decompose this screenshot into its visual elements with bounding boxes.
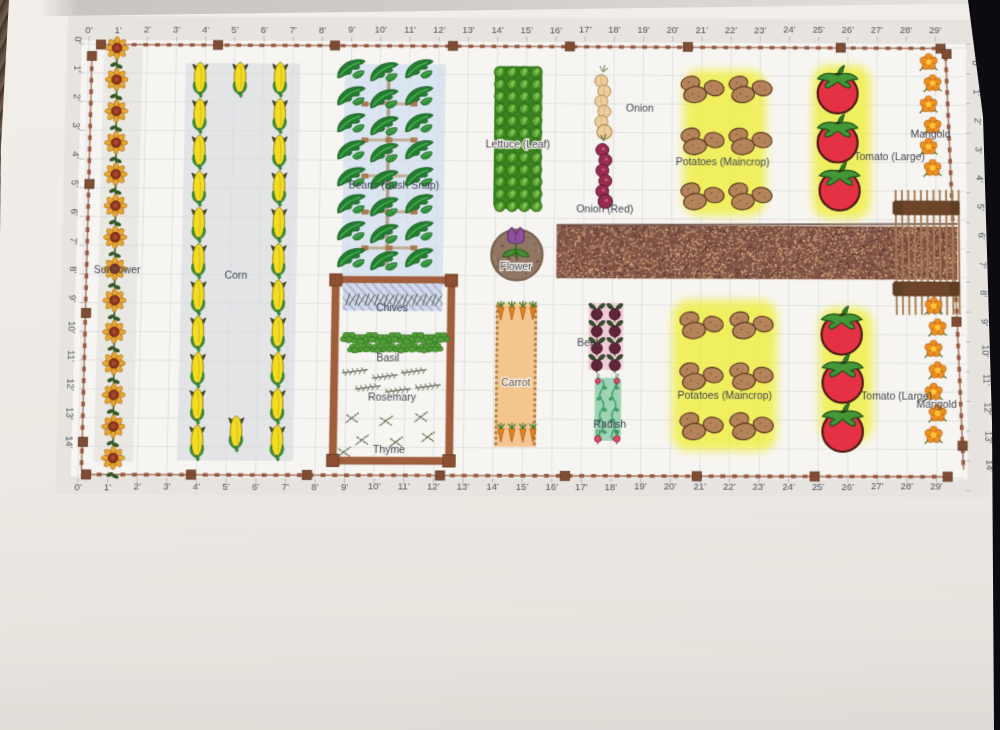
svg-text:6’: 6’ <box>977 233 987 240</box>
svg-text:4’: 4’ <box>202 25 210 35</box>
svg-text:5’: 5’ <box>70 180 80 187</box>
svg-text:18’: 18’ <box>608 25 621 35</box>
svg-text:3’: 3’ <box>973 147 983 154</box>
svg-text:26’: 26’ <box>841 482 854 492</box>
svg-text:22’: 22’ <box>723 482 736 492</box>
svg-text:20’: 20’ <box>667 25 680 35</box>
svg-text:10’: 10’ <box>375 25 388 35</box>
svg-text:19’: 19’ <box>637 25 650 35</box>
svg-text:5’: 5’ <box>231 25 239 35</box>
svg-text:12’: 12’ <box>433 25 446 35</box>
svg-text:6’: 6’ <box>69 209 79 216</box>
svg-text:2’: 2’ <box>133 482 141 492</box>
svg-text:17’: 17’ <box>575 482 588 492</box>
svg-text:28’: 28’ <box>900 25 913 35</box>
svg-text:0’: 0’ <box>73 36 83 43</box>
svg-text:27’: 27’ <box>871 25 884 35</box>
svg-text:9’: 9’ <box>980 319 990 326</box>
svg-text:7’: 7’ <box>290 25 298 35</box>
svg-text:2’: 2’ <box>973 118 983 125</box>
svg-text:7’: 7’ <box>977 261 987 268</box>
svg-text:9’: 9’ <box>348 25 355 35</box>
svg-text:26’: 26’ <box>842 25 855 35</box>
svg-text:11’: 11’ <box>398 482 410 492</box>
svg-text:13’: 13’ <box>64 407 75 420</box>
svg-text:10’: 10’ <box>368 482 381 492</box>
svg-text:8’: 8’ <box>978 290 988 297</box>
svg-text:21’: 21’ <box>696 25 709 35</box>
svg-text:15’: 15’ <box>516 482 529 492</box>
svg-text:8’: 8’ <box>311 482 319 492</box>
svg-text:12’: 12’ <box>65 378 76 391</box>
svg-text:9’: 9’ <box>341 482 349 492</box>
svg-text:28’: 28’ <box>901 482 914 492</box>
svg-text:9’: 9’ <box>67 295 77 302</box>
svg-text:14’: 14’ <box>984 460 994 473</box>
svg-text:25’: 25’ <box>812 25 825 35</box>
svg-text:22’: 22’ <box>725 25 738 35</box>
svg-text:8’: 8’ <box>68 266 78 273</box>
svg-text:23’: 23’ <box>753 482 766 492</box>
svg-text:2’: 2’ <box>144 25 152 35</box>
svg-text:14’: 14’ <box>491 25 504 35</box>
svg-text:11’: 11’ <box>981 374 991 386</box>
svg-text:13’: 13’ <box>457 482 470 492</box>
svg-text:1’: 1’ <box>972 89 982 96</box>
svg-text:12’: 12’ <box>982 402 992 415</box>
svg-text:24’: 24’ <box>783 25 796 35</box>
svg-text:23’: 23’ <box>754 25 767 35</box>
svg-text:11’: 11’ <box>404 25 416 35</box>
svg-text:11’: 11’ <box>66 350 77 362</box>
svg-text:15’: 15’ <box>521 25 534 35</box>
svg-text:19’: 19’ <box>634 482 647 492</box>
svg-text:27’: 27’ <box>871 482 884 492</box>
svg-text:13’: 13’ <box>462 25 475 35</box>
svg-text:7’: 7’ <box>68 237 78 244</box>
svg-text:8’: 8’ <box>319 25 326 35</box>
svg-text:14’: 14’ <box>486 482 499 492</box>
svg-text:4’: 4’ <box>974 175 984 182</box>
svg-text:6’: 6’ <box>260 25 268 35</box>
svg-text:0’: 0’ <box>85 25 93 35</box>
svg-text:5’: 5’ <box>222 482 230 492</box>
svg-text:13’: 13’ <box>983 431 993 444</box>
svg-text:0’: 0’ <box>971 60 981 67</box>
svg-text:3’: 3’ <box>71 123 81 130</box>
svg-text:14’: 14’ <box>64 436 75 449</box>
svg-text:25’: 25’ <box>812 482 825 492</box>
svg-text:18’: 18’ <box>605 482 618 492</box>
svg-text:0’: 0’ <box>74 482 82 492</box>
svg-text:1’: 1’ <box>104 482 112 492</box>
svg-text:6’: 6’ <box>252 482 260 492</box>
svg-text:10’: 10’ <box>980 345 990 358</box>
svg-text:3’: 3’ <box>163 482 171 492</box>
svg-text:29’: 29’ <box>929 25 942 35</box>
svg-text:24’: 24’ <box>782 482 795 492</box>
svg-text:4’: 4’ <box>193 482 201 492</box>
svg-text:1’: 1’ <box>114 25 122 35</box>
svg-text:1’: 1’ <box>72 65 82 72</box>
svg-text:16’: 16’ <box>545 482 558 492</box>
svg-text:2’: 2’ <box>72 94 82 101</box>
svg-text:12’: 12’ <box>427 482 440 492</box>
svg-text:5’: 5’ <box>976 204 986 211</box>
svg-text:4’: 4’ <box>70 151 80 158</box>
svg-text:17’: 17’ <box>579 25 592 35</box>
svg-text:7’: 7’ <box>282 482 290 492</box>
svg-text:3’: 3’ <box>173 25 181 35</box>
svg-text:21’: 21’ <box>693 482 706 492</box>
svg-text:10’: 10’ <box>66 321 77 334</box>
svg-text:29’: 29’ <box>930 482 943 492</box>
svg-text:20’: 20’ <box>664 482 677 492</box>
svg-text:16’: 16’ <box>550 25 563 35</box>
